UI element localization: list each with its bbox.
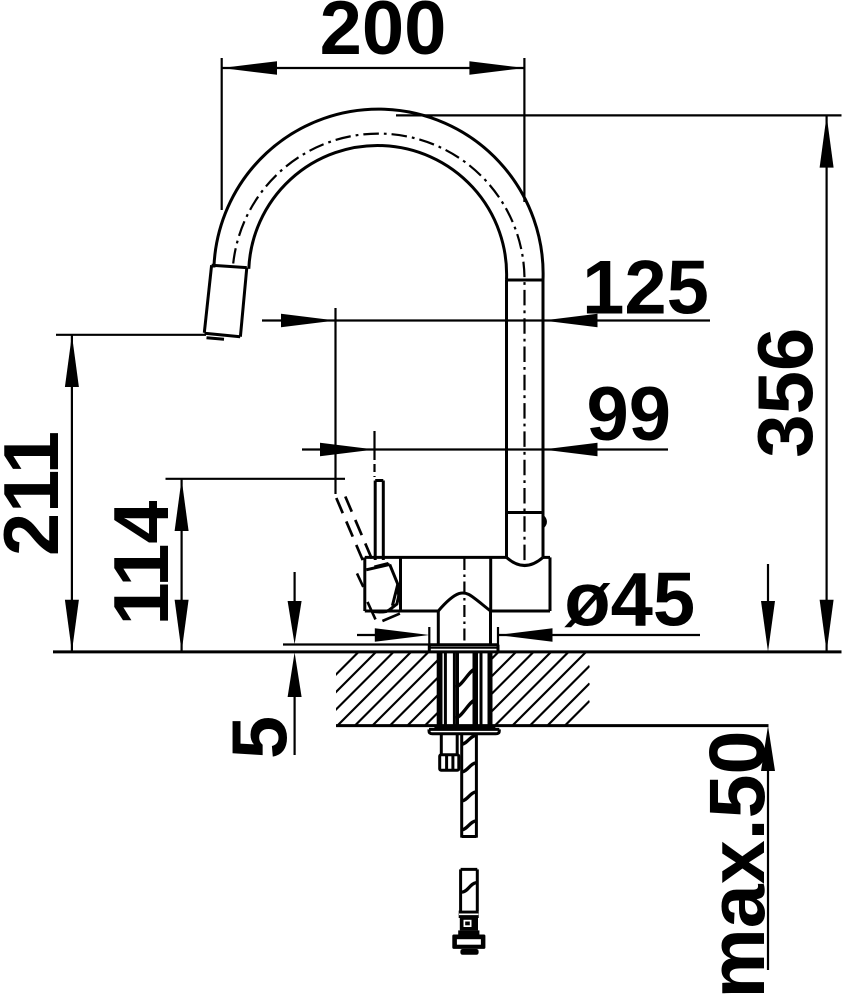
svg-text:99: 99 xyxy=(587,372,672,457)
svg-text:200: 200 xyxy=(320,0,447,71)
svg-text:114: 114 xyxy=(99,500,185,625)
svg-text:ø45: ø45 xyxy=(564,558,695,643)
svg-text:125: 125 xyxy=(582,246,709,331)
svg-text:5: 5 xyxy=(217,716,303,759)
svg-text:356: 356 xyxy=(741,328,829,458)
svg-text:211: 211 xyxy=(0,431,75,556)
